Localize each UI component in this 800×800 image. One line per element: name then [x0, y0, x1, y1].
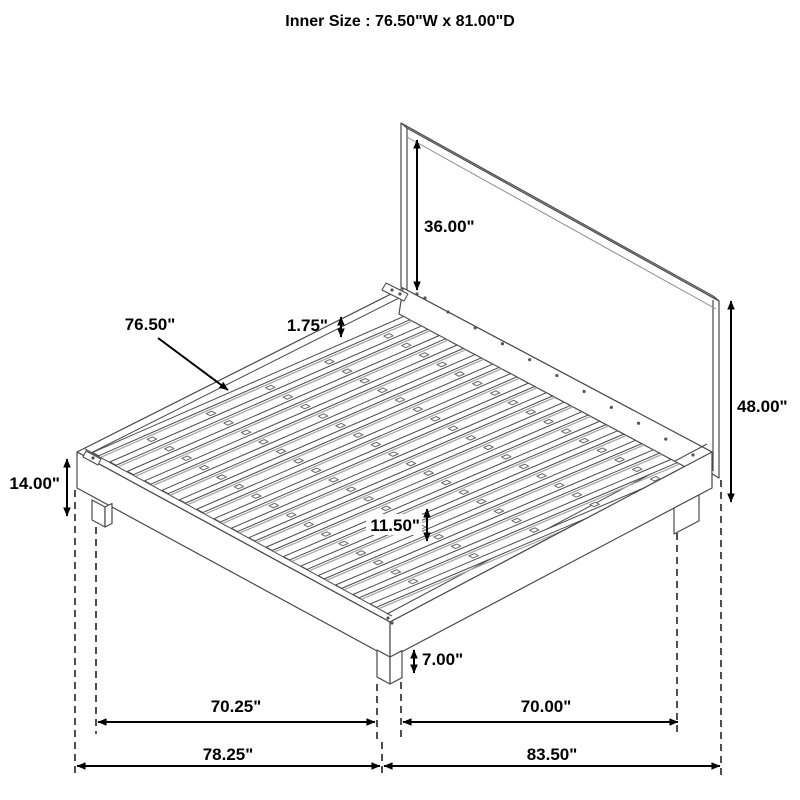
dim-label-leg-span-left: 70.25" [211, 697, 262, 716]
screw-hole [501, 342, 504, 345]
dim-label-slat-span: 76.50" [125, 315, 176, 334]
screw-hole [446, 310, 449, 313]
dim-label-headboard-height: 36.00" [424, 217, 475, 236]
left-leg-side [105, 504, 112, 528]
dim-label-leg-span-right: 70.00" [521, 697, 572, 716]
page-title: Inner Size : 76.50"W x 81.00"D [285, 13, 515, 30]
dim-label-overall-width: 78.25" [203, 745, 254, 764]
left-leg [92, 500, 105, 527]
screw-hole [637, 422, 640, 425]
leader-arrow-slat-span [158, 338, 228, 390]
screw-hole [398, 292, 401, 295]
bed-dimension-diagram: Inner Size : 76.50"W x 81.00"D [0, 0, 800, 800]
dim-label-overall-height: 48.00" [737, 397, 788, 416]
dim-label-leg-height: 7.00" [422, 650, 463, 669]
screw-hole [423, 296, 426, 299]
screw-hole [528, 358, 531, 361]
dim-label-slat-thickness: 1.75" [287, 316, 328, 335]
screw-hole [390, 621, 393, 624]
bed-dimension-diagram-page: Inner Size : 76.50"W x 81.00"D [0, 0, 800, 800]
screw-hole [610, 406, 613, 409]
screw-hole [691, 453, 694, 456]
screw-hole [386, 616, 389, 619]
headboard-left-edge [401, 123, 407, 292]
screw-hole [415, 292, 418, 295]
screw-hole [91, 456, 94, 459]
dim-label-overall-depth: 83.50" [527, 745, 578, 764]
front-leg-right-face [390, 651, 402, 684]
dim-label-center-gap: 11.50" [370, 516, 420, 535]
screw-hole [390, 288, 393, 291]
screw-hole [555, 374, 558, 377]
screw-hole [664, 438, 667, 441]
screw-hole [583, 390, 586, 393]
screw-hole [474, 326, 477, 329]
dim-label-platform-height: 14.00" [9, 474, 60, 493]
